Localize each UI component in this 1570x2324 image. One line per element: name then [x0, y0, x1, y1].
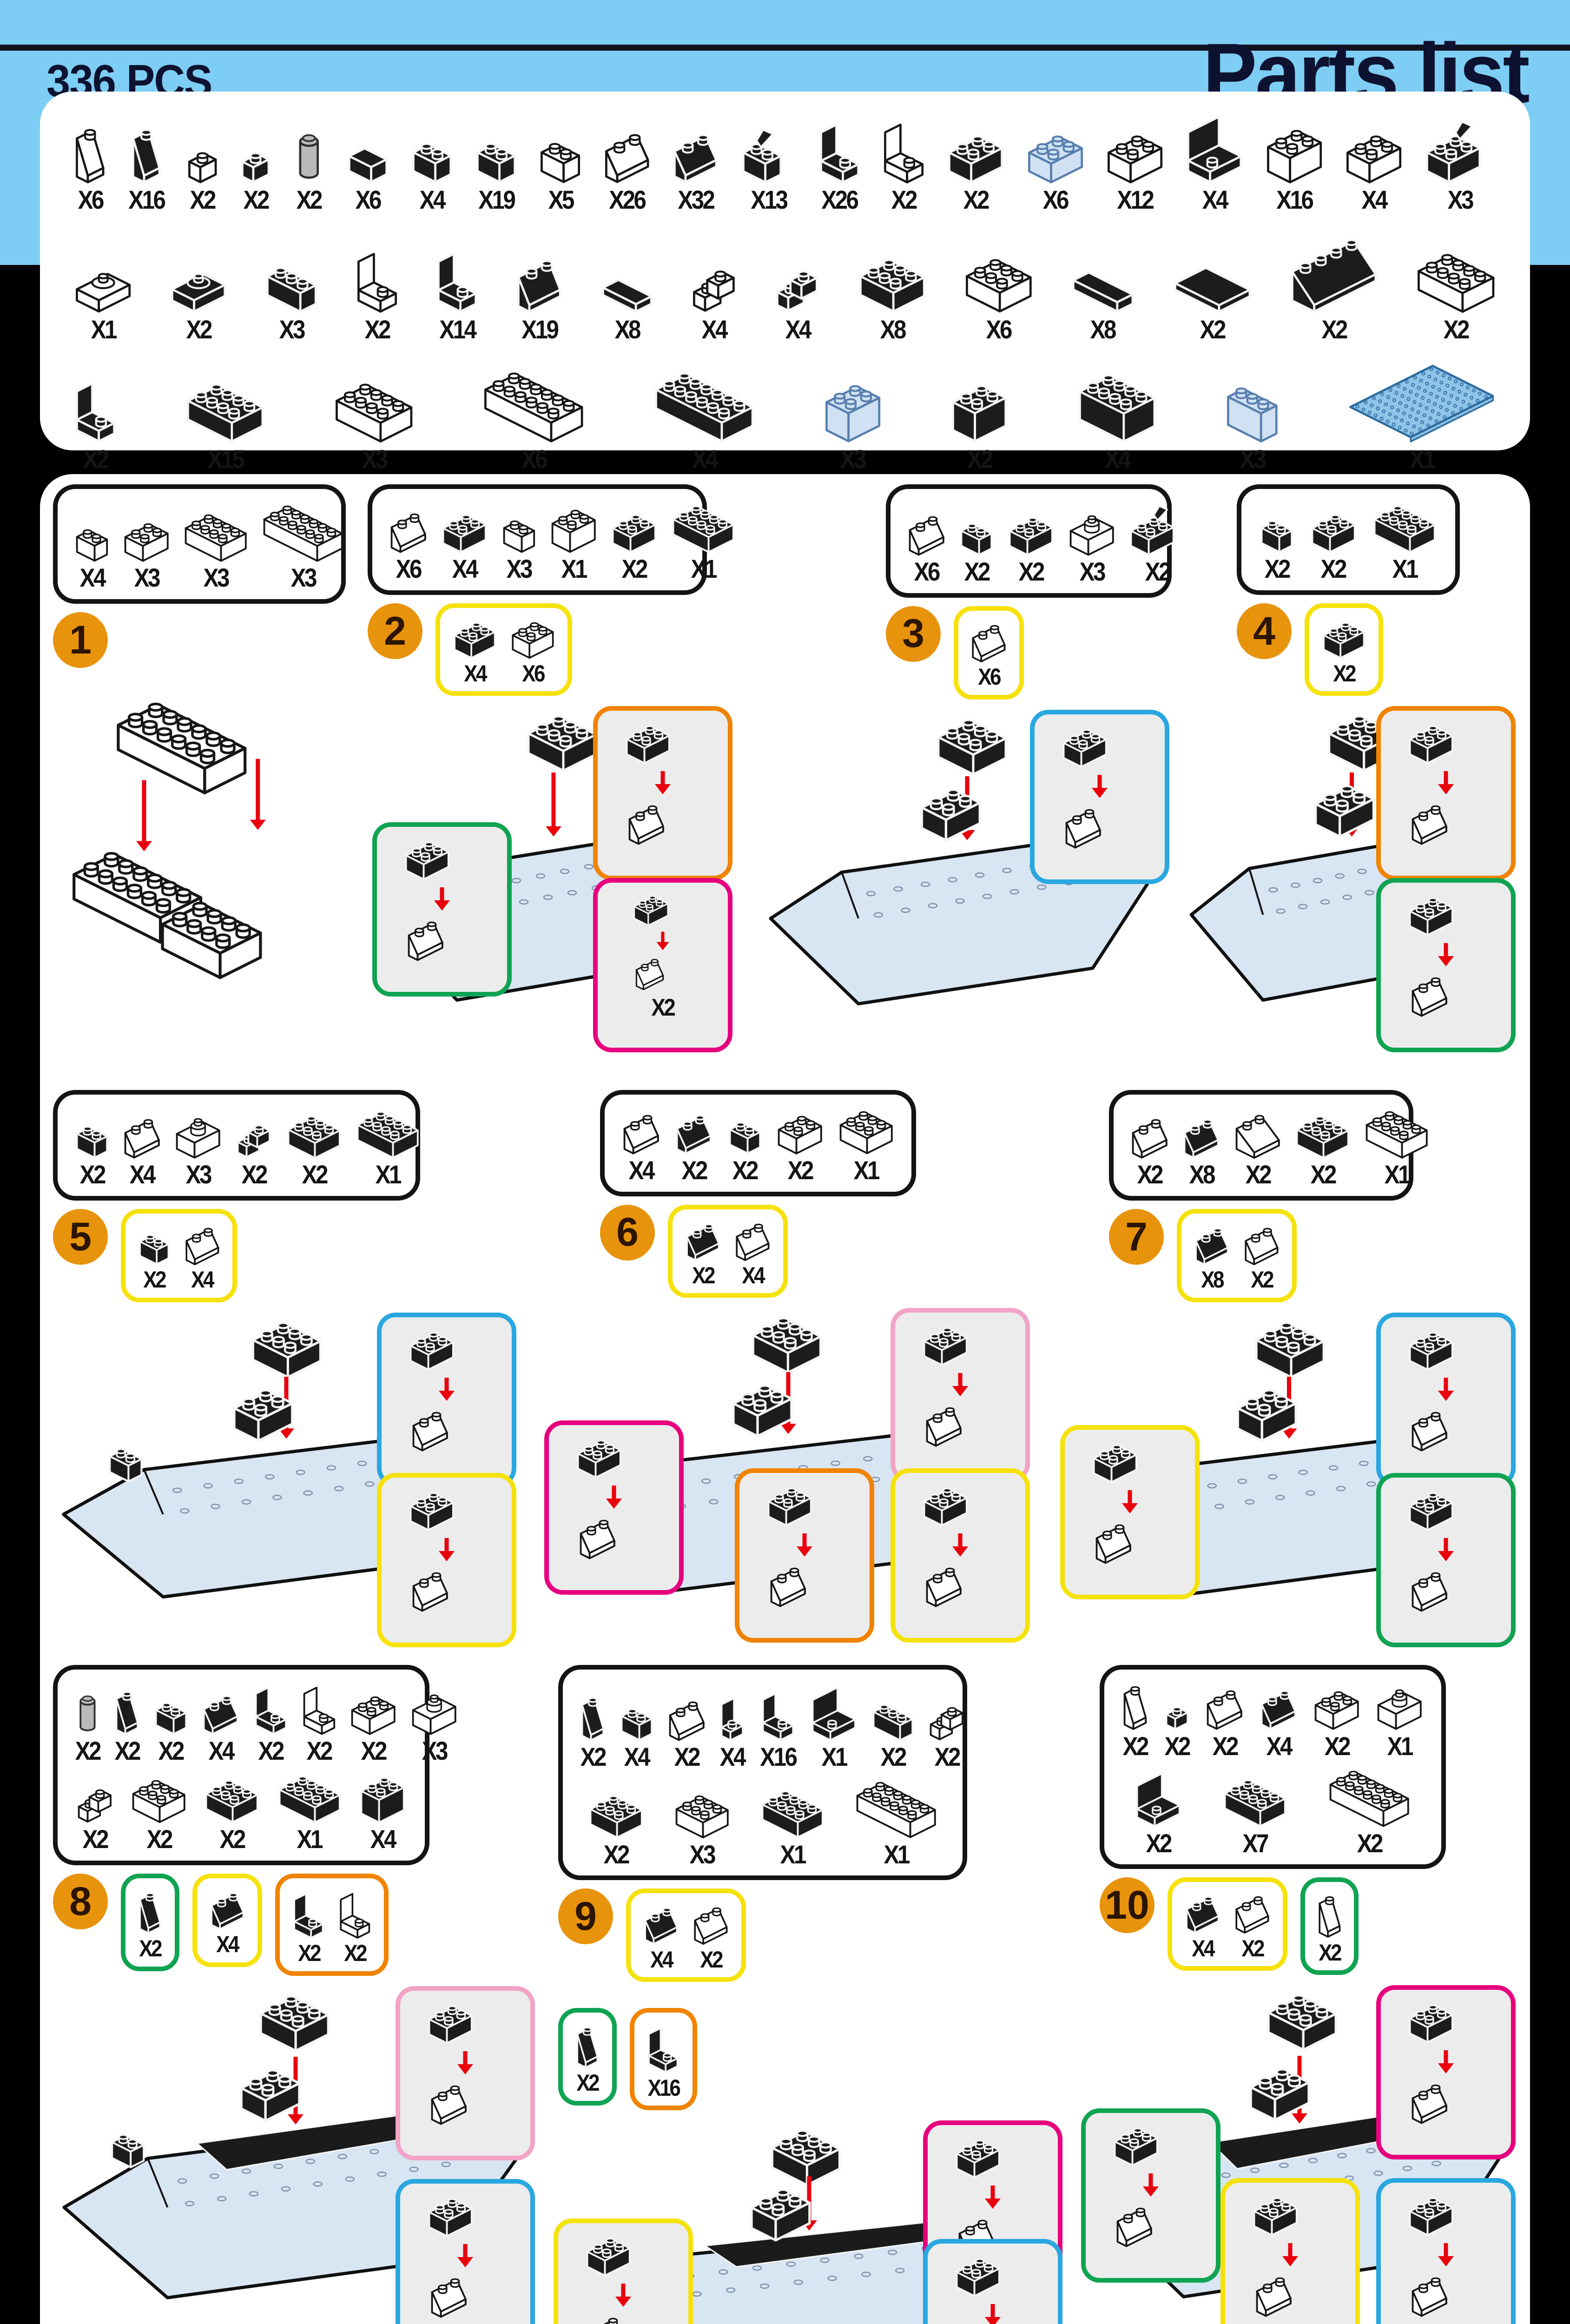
- step-number-badge: 8: [53, 1874, 108, 1929]
- brick-brick-icon: [1309, 505, 1358, 555]
- brick-brick-icon: [856, 248, 929, 316]
- slope-brick-icon: [673, 1106, 714, 1157]
- part-qty: X2: [115, 1737, 139, 1765]
- part-qty: X1: [376, 1161, 400, 1188]
- step-diagram-area: [1181, 701, 1523, 1068]
- callout-detail-icon: [1072, 1435, 1188, 1570]
- step-number-badge: 4: [1237, 603, 1292, 659]
- part-qty: X2: [1265, 555, 1289, 583]
- slope-brick-icon: [642, 1899, 680, 1947]
- part-item: X3: [409, 1687, 459, 1765]
- cwall-brick-icon: [718, 1688, 746, 1744]
- part-qty: X8: [1201, 1268, 1223, 1292]
- step-2: X6X4X3X1X2X12X4X6X2: [368, 484, 739, 1068]
- detail-callout: [891, 1468, 1030, 1643]
- parts-list-panel: X6X16X2X2X2X6X4X19X5X26X32X13X26X2X2X6X1…: [40, 92, 1530, 450]
- part-qty: X15: [208, 446, 244, 473]
- part-qty: X19: [521, 316, 557, 343]
- tslope-brick-icon: [574, 2018, 601, 2071]
- part-item: X2: [73, 370, 119, 473]
- detail-callout: [1376, 706, 1516, 880]
- part-qty: X6: [914, 558, 939, 586]
- part-item: X6: [509, 614, 556, 686]
- part-qty: X4: [208, 1737, 233, 1765]
- step-sub-callout: X6: [954, 606, 1024, 700]
- callout-detail-icon: [407, 1996, 523, 2131]
- brick-brick-icon: [1312, 1682, 1361, 1732]
- cwall-brick-icon: [301, 1677, 338, 1737]
- step-parts-callout: X6X2X2X3X2: [886, 484, 1172, 598]
- part-item: X4: [1184, 104, 1245, 214]
- zig-brick-icon: [690, 260, 739, 316]
- slope-brick-icon: [1193, 1219, 1231, 1268]
- part-qty: X13: [751, 186, 786, 214]
- part-item: X16: [126, 118, 167, 214]
- callout-detail-icon: [605, 888, 721, 995]
- part-item: X2: [692, 1899, 730, 1972]
- part-qty: X2: [361, 1737, 386, 1765]
- part-item: X6: [906, 507, 947, 586]
- assembly-diagram: [49, 673, 365, 1029]
- brick-brick-icon: [670, 496, 737, 555]
- brick-brick-icon: [182, 505, 249, 564]
- slope-brick-icon: [388, 504, 429, 555]
- part-item: X1: [549, 501, 598, 583]
- part-item: X4: [621, 1106, 661, 1184]
- slope-brick-icon: [906, 507, 947, 558]
- slope-brick-icon: [1242, 1219, 1281, 1268]
- part-qty: X2: [243, 186, 268, 214]
- brick-brick-icon: [285, 1107, 343, 1162]
- part-item: X4: [358, 1768, 407, 1853]
- part-item: X2: [1242, 1219, 1281, 1292]
- part-item: X6: [73, 118, 108, 214]
- cyl-brick-icon: [291, 132, 327, 186]
- brick-brick-icon: [1343, 124, 1405, 187]
- detail-callout: [923, 2239, 1062, 2324]
- cwall-brick-icon: [759, 1683, 797, 1743]
- step-3: X6X2X2X3X23X6: [758, 484, 1176, 1068]
- part-item: X6: [1025, 124, 1086, 214]
- brick-brick-icon: [152, 1693, 190, 1737]
- part-qty: X6: [978, 665, 1000, 689]
- brick-brick-icon: [1221, 1770, 1288, 1829]
- part-item: X2: [1163, 1697, 1191, 1760]
- brick-brick-icon: [1163, 1697, 1191, 1733]
- part-qty: X2: [307, 1737, 331, 1765]
- part-item: X2: [234, 1116, 274, 1189]
- tslope-brick-icon: [1316, 1888, 1343, 1940]
- part-qty: X5: [548, 186, 573, 214]
- brick-brick-icon: [775, 1107, 825, 1157]
- part-qty: X2: [258, 1737, 283, 1765]
- zig-brick-icon: [927, 1699, 967, 1744]
- part-qty: X2: [1321, 555, 1346, 583]
- part-qty: X4: [629, 1157, 653, 1184]
- part-item: X2: [1309, 505, 1358, 583]
- parts-row-2: X1X2X3X2X14X19X8X4X4X8X6X8X2X2X2: [40, 228, 1530, 343]
- step-sub-callout: X16: [630, 2008, 697, 2110]
- part-item: X2: [1288, 228, 1380, 343]
- brick-brick-icon: [1264, 119, 1325, 187]
- part-qty: X1: [1384, 1161, 1409, 1188]
- part-qty: X2: [681, 1157, 706, 1184]
- part-item: X1: [670, 496, 737, 583]
- part-qty: X2: [219, 1826, 244, 1853]
- brick-brick-icon: [122, 514, 171, 564]
- part-item: X4: [733, 1215, 772, 1288]
- part-qty: X2: [79, 1161, 104, 1188]
- brick-brick-icon: [473, 132, 519, 186]
- part-qty: X6: [986, 316, 1011, 343]
- callout-qty: X2: [652, 995, 674, 1021]
- detail-callout: [735, 1468, 874, 1643]
- part-qty: X4: [702, 316, 726, 343]
- part-item: X2: [1006, 508, 1055, 586]
- brick-brick-icon: [130, 1771, 188, 1826]
- part-qty: X6: [396, 555, 421, 583]
- part-qty: X2: [1444, 316, 1468, 343]
- part-item: X4: [208, 1884, 247, 1957]
- part-qty: X4: [130, 1161, 154, 1188]
- cwall-brick-icon: [817, 112, 863, 187]
- brick-brick-icon: [409, 132, 455, 186]
- part-item: X2: [1204, 1681, 1245, 1760]
- part-item: X2: [1312, 1682, 1361, 1760]
- detail-callout: [396, 2179, 535, 2324]
- part-item: X2: [587, 1786, 645, 1868]
- part-qty: X3: [134, 564, 158, 592]
- callout-detail-icon: [1388, 716, 1504, 851]
- part-item: X1: [1371, 496, 1438, 583]
- part-qty: X26: [609, 186, 645, 214]
- part-item: X4: [1075, 363, 1159, 473]
- part-item: X26: [602, 123, 653, 214]
- part-qty: X1: [854, 1157, 878, 1184]
- part-item: X2: [337, 1884, 373, 1966]
- slope-brick-icon: [1233, 1106, 1282, 1162]
- step-number-badge: 3: [886, 606, 941, 662]
- slope-brick-icon: [970, 616, 1008, 665]
- part-item: X16: [758, 1683, 798, 1771]
- part-item: X3: [182, 505, 249, 592]
- part-item: X4: [451, 614, 498, 686]
- tslope-brick-icon: [113, 1682, 141, 1738]
- step-sub-callout: X2: [558, 2008, 617, 2106]
- brick-brick-icon: [870, 1695, 916, 1744]
- step-parts-callout: X2X4X2X4X16X1X2X2X2X3X1X1: [558, 1665, 967, 1880]
- part-qty: X2: [190, 186, 215, 214]
- slope-brick-icon: [602, 123, 653, 186]
- step-sub-callout: X8X2: [1177, 1209, 1297, 1302]
- part-qty: X26: [822, 186, 858, 214]
- part-qty: X6: [522, 661, 544, 686]
- part-qty: X4: [742, 1263, 764, 1288]
- part-qty: X2: [1200, 316, 1225, 343]
- part-item: X16: [1264, 119, 1325, 214]
- part-item: X3: [1423, 110, 1497, 214]
- step-sub-callout: X2: [1300, 1877, 1359, 1975]
- tslope-brick-icon: [579, 1688, 607, 1744]
- step-parts-callout: X4X3X3X3: [53, 484, 346, 604]
- brick-brick-icon: [963, 248, 1035, 316]
- part-qty: X6: [1043, 186, 1068, 214]
- part-item: X2: [949, 374, 1010, 473]
- part-item: X3: [332, 372, 416, 473]
- part-item: X2: [1134, 1763, 1183, 1857]
- part-qty: X4: [692, 446, 716, 473]
- part-qty: X6: [521, 446, 546, 473]
- part-item: X2: [285, 1107, 343, 1189]
- part-item: X2: [130, 1771, 188, 1853]
- part-qty: X1: [297, 1826, 322, 1853]
- step-number-badge: 9: [558, 1888, 613, 1944]
- part-qty: X2: [1145, 558, 1170, 586]
- part-qty: X2: [963, 186, 988, 214]
- detail-callout: [372, 822, 512, 997]
- step-5: X2X4X3X2X2X15X2X4: [49, 1090, 523, 1662]
- part-item: X2: [291, 1884, 326, 1966]
- part-item: X1: [759, 1782, 826, 1868]
- part-item: X3: [122, 514, 171, 592]
- step-diagram-area: [1076, 1981, 1523, 2324]
- round-brick-icon: [1067, 508, 1116, 558]
- part-item: X19: [473, 132, 519, 214]
- part-qty: X2: [297, 186, 321, 214]
- part-qty: X16: [760, 1743, 796, 1771]
- brick-brick-icon: [618, 1699, 655, 1743]
- plate-brick-icon: [73, 261, 134, 316]
- brick-brick-icon: [451, 614, 498, 661]
- part-qty: X3: [186, 1161, 211, 1188]
- cwall-brick-icon: [434, 241, 480, 316]
- callout-detail-icon: [746, 1479, 863, 1613]
- part-item: X2: [185, 141, 220, 214]
- cyl-brick-icon: [73, 1693, 102, 1737]
- part-qty: X4: [1202, 186, 1227, 214]
- part-item: X4: [642, 1899, 680, 1972]
- part-item: X2: [203, 1771, 261, 1853]
- part-qty: X2: [732, 1157, 757, 1184]
- bar-brick-icon: [1171, 255, 1254, 316]
- part-item: X4: [1183, 1888, 1222, 1961]
- part-qty: X1: [1409, 446, 1434, 473]
- step-1: X4X3X3X31: [49, 484, 365, 1068]
- callout-detail-icon: [902, 1479, 1018, 1613]
- brick-brick-icon: [652, 361, 757, 446]
- callout-detail-icon: [1388, 1483, 1504, 1618]
- step-number-badge: 2: [368, 603, 422, 659]
- latch-brick-icon: [1128, 496, 1187, 558]
- brick-brick-icon: [440, 505, 489, 555]
- part-item: X3: [261, 496, 345, 592]
- part-item: X2: [1316, 1888, 1343, 1965]
- part-item: X1: [1346, 359, 1497, 473]
- part-item: X2: [137, 1884, 164, 1961]
- part-qty: X8: [1189, 1161, 1214, 1188]
- brick-brick-icon: [137, 1226, 172, 1268]
- step-number-badge: 6: [600, 1205, 655, 1261]
- detail-callout: [1376, 878, 1516, 1052]
- brick-brick-icon: [1006, 508, 1055, 558]
- step-sub-callout: X4X2: [626, 1888, 746, 1982]
- part-item: X2: [726, 1113, 764, 1184]
- brick-brick-icon: [481, 361, 587, 446]
- part-item: X4: [200, 1686, 241, 1765]
- brick-brick-icon: [358, 1768, 407, 1826]
- detail-callout: [1376, 1313, 1516, 1487]
- part-qty: X3: [1240, 446, 1265, 473]
- detail-callout: [1081, 2108, 1220, 2283]
- part-item: X6: [345, 135, 391, 214]
- brick-brick-icon: [726, 1113, 764, 1157]
- cwall-brick-icon: [337, 1884, 373, 1941]
- part-qty: X4: [191, 1268, 213, 1292]
- detail-callout: X2: [593, 878, 732, 1052]
- step-number-badge: 5: [53, 1209, 108, 1265]
- step-parts-callout: X2X2X2X4X2X1X2X7X2: [1100, 1665, 1446, 1869]
- step-diagram-area: [549, 2116, 1069, 2324]
- slope-brick-icon: [733, 1215, 772, 1263]
- step-number-badge: 10: [1100, 1877, 1154, 1933]
- slope-brick-icon: [666, 1692, 707, 1743]
- part-item: X2: [1121, 1677, 1149, 1760]
- callout-detail-icon: [605, 716, 721, 851]
- part-item: X16: [646, 2018, 681, 2100]
- part-item: X1: [73, 261, 134, 343]
- part-qty: X3: [690, 1841, 714, 1868]
- zig-brick-icon: [773, 260, 822, 316]
- round-brick-icon: [409, 1687, 459, 1737]
- part-item: X14: [434, 241, 480, 343]
- part-qty: X2: [158, 1737, 183, 1765]
- slope-brick-icon: [692, 1899, 730, 1947]
- step-parts-callout: X2X8X2X2X1: [1109, 1090, 1413, 1201]
- part-item: X3: [673, 1786, 731, 1868]
- part-qty: X2: [622, 555, 646, 583]
- callout-detail-icon: [565, 2229, 681, 2324]
- slope-brick-icon: [1129, 1110, 1170, 1161]
- part-item: X1: [854, 1773, 938, 1868]
- part-qty: X1: [884, 1841, 908, 1868]
- brick-brick-icon: [1320, 614, 1367, 661]
- brick-brick-icon: [822, 374, 884, 446]
- step-parts-callout: X2X2X2X4X2X2X2X3X2X2X2X1X4: [53, 1665, 429, 1865]
- step-parts-callout: X6X4X3X1X2X1: [368, 484, 707, 595]
- part-item: X2: [75, 1781, 115, 1854]
- part-qty: X2: [881, 1743, 905, 1771]
- slope-brick-icon: [1258, 1681, 1299, 1732]
- part-item: X2: [291, 132, 327, 214]
- part-qty: X2: [967, 446, 992, 473]
- part-item: X8: [856, 248, 929, 343]
- part-item: X2: [354, 241, 400, 343]
- part-item: X2: [870, 1695, 916, 1771]
- bar-brick-icon: [345, 135, 391, 186]
- cwall-brick-icon: [252, 1677, 290, 1737]
- part-qty: X4: [785, 316, 810, 343]
- part-item: X2: [168, 261, 229, 343]
- tslope-brick-icon: [137, 1884, 164, 1936]
- step-diagram-area: X2: [368, 701, 739, 1068]
- step-diagram-area: [49, 1981, 542, 2324]
- slope-brick-icon: [621, 1106, 661, 1157]
- brick-brick-icon: [854, 1773, 938, 1841]
- part-item: X19: [514, 249, 565, 343]
- callout-detail-icon: [1388, 888, 1504, 1023]
- part-qty: X2: [75, 1737, 100, 1765]
- part-qty: X2: [1241, 1936, 1263, 1961]
- part-item: X2: [301, 1677, 338, 1765]
- brick-brick-icon: [673, 1786, 731, 1841]
- instruction-page: { "header": { "pcs": "336 PCS", "title":…: [0, 0, 1570, 2324]
- part-qty: X4: [1105, 446, 1129, 473]
- slope-brick-icon: [200, 1686, 241, 1737]
- part-qty: X2: [344, 1941, 366, 1966]
- callout-detail-icon: [1093, 2119, 1209, 2253]
- part-qty: X1: [561, 555, 586, 583]
- detail-callout: [1376, 1473, 1516, 1647]
- slope-brick-icon: [684, 1215, 722, 1263]
- part-item: X2: [579, 1688, 607, 1771]
- part-qty: X2: [692, 1263, 714, 1288]
- part-item: X4: [1343, 124, 1405, 214]
- detail-callout: [1376, 2178, 1516, 2324]
- step-diagram-area: [1055, 1308, 1523, 1662]
- step-10: X2X2X2X4X2X1X2X7X210X4X2X2: [1076, 1665, 1523, 2324]
- slope-brick-icon: [208, 1884, 247, 1932]
- part-qty: X1: [1392, 555, 1417, 583]
- part-qty: X8: [615, 316, 640, 343]
- part-item: X3: [501, 511, 538, 583]
- step-sub-callout: X4: [192, 1874, 263, 1967]
- brick-brick-icon: [73, 1117, 111, 1161]
- part-qty: X3: [362, 446, 386, 473]
- zig-brick-icon: [75, 1781, 115, 1826]
- part-item: X12: [1104, 124, 1166, 214]
- brick-brick-icon: [184, 372, 267, 446]
- part-qty: X4: [217, 1932, 238, 1957]
- part-item: X3: [1067, 508, 1116, 586]
- latch-brick-icon: [739, 118, 798, 187]
- part-qty: X2: [700, 1948, 722, 1972]
- brick-brick-icon: [1025, 124, 1086, 187]
- step-7: X2X8X2X2X17X8X2: [1055, 1090, 1523, 1662]
- step-4: X2X2X14X2: [1181, 484, 1523, 1068]
- slope-brick-icon: [183, 1219, 222, 1268]
- part-qty: X4: [79, 564, 104, 592]
- part-item: X2: [945, 124, 1006, 214]
- part-item: X1: [276, 1767, 343, 1853]
- part-qty: X2: [1333, 661, 1355, 686]
- part-qty: X4: [370, 1826, 395, 1853]
- slope-brick-icon: [1183, 1888, 1222, 1936]
- detail-callout: [1220, 2178, 1360, 2324]
- brick-brick-icon: [332, 372, 416, 446]
- detail-callout: [396, 1986, 535, 2160]
- step-diagram-area: [758, 705, 1176, 1068]
- brick-brick-icon: [185, 141, 220, 186]
- part-qty: X2: [1137, 1161, 1162, 1188]
- brick-brick-icon: [501, 511, 538, 555]
- detail-callout: [1376, 1985, 1516, 2159]
- part-qty: X2: [1165, 1733, 1189, 1760]
- part-qty: X2: [143, 1268, 165, 1292]
- part-qty: X3: [422, 1737, 446, 1765]
- part-item: X2: [73, 1117, 111, 1188]
- part-qty: X16: [647, 2076, 679, 2100]
- callout-detail-icon: [384, 832, 500, 967]
